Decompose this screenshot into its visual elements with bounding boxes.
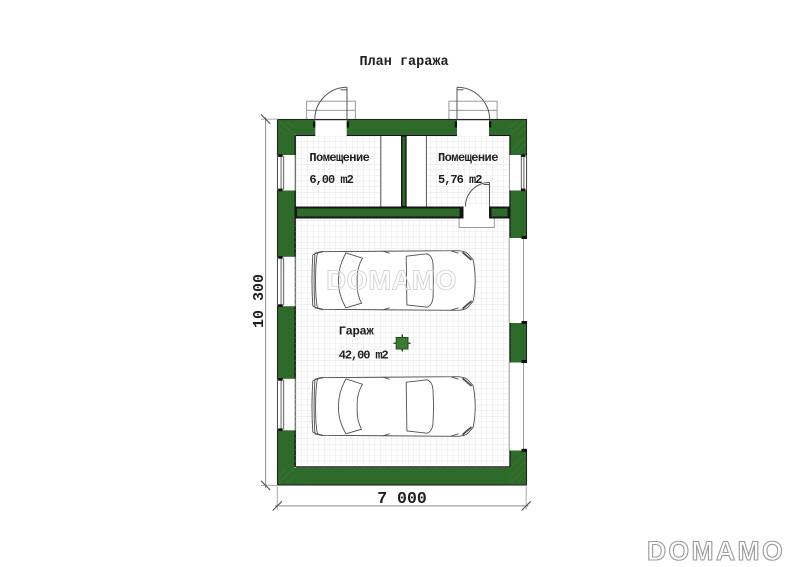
svg-text:DOMAMO: DOMAMO (647, 536, 785, 566)
svg-text:5,76 m2: 5,76 m2 (438, 173, 482, 187)
svg-text:Помещение: Помещение (309, 151, 369, 165)
svg-text:Помещение: Помещение (438, 151, 498, 165)
svg-text:10 300: 10 300 (251, 274, 268, 328)
svg-text:6,00 m2: 6,00 m2 (309, 173, 353, 187)
svg-text:План гаража: План гаража (359, 55, 448, 70)
svg-text:42,00 m2: 42,00 m2 (339, 348, 389, 362)
svg-text:Гараж: Гараж (339, 324, 375, 338)
svg-text:DOMAMO: DOMAMO (326, 265, 457, 296)
svg-text:7 000: 7 000 (377, 489, 427, 508)
